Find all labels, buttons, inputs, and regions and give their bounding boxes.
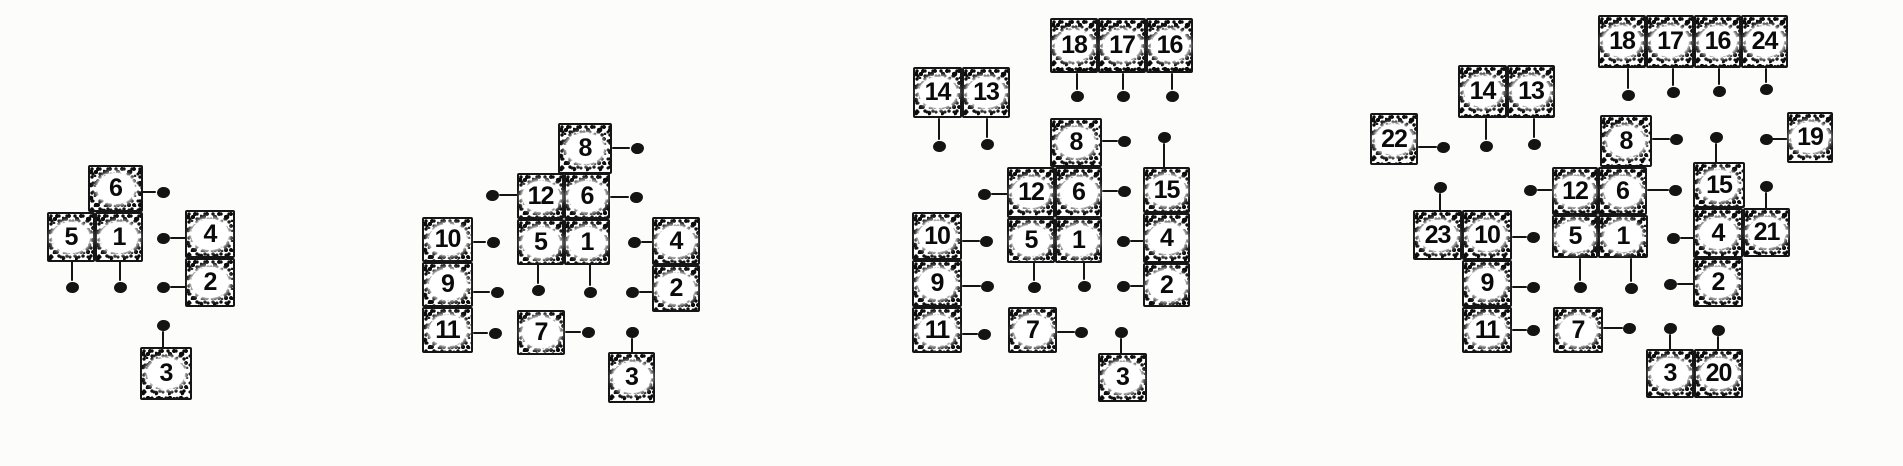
post-dot (1527, 138, 1541, 151)
post-dot (1573, 281, 1587, 294)
stage-panel-4: 181716241413228191261523105142129117320 (0, 0, 1903, 466)
unit-block-6: 6 (1598, 167, 1647, 215)
post-dot (1621, 89, 1635, 102)
unit-block-21: 21 (1743, 208, 1790, 257)
unit-number-badge: 22 (1375, 124, 1413, 155)
unit-block-12: 12 (1552, 167, 1598, 215)
unit-number-badge: 8 (1607, 126, 1645, 157)
unit-block-18: 18 (1598, 15, 1646, 68)
unit-number-badge: 10 (1468, 220, 1506, 251)
unit-block-1: 1 (1598, 215, 1648, 258)
post-dot (1433, 181, 1447, 194)
connector-line (1652, 138, 1670, 141)
post-dot (1709, 131, 1723, 144)
connector-line (1579, 258, 1582, 281)
unit-number-badge: 18 (1603, 26, 1641, 57)
unit-block-14: 14 (1458, 65, 1507, 118)
connector-line (1647, 189, 1669, 192)
unit-block-5: 5 (1552, 215, 1598, 258)
connector-line (1765, 68, 1768, 83)
unit-block-8: 8 (1600, 115, 1652, 167)
post-dot (1624, 282, 1638, 295)
post-dot (1759, 83, 1773, 96)
unit-number-badge: 20 (1700, 358, 1738, 389)
unit-number-badge: 2 (1699, 267, 1737, 298)
unit-block-15: 15 (1693, 162, 1745, 208)
unit-number-badge: 19 (1791, 122, 1829, 153)
connector-line (1485, 118, 1488, 140)
unit-block-13: 13 (1507, 65, 1555, 118)
unit-block-3: 3 (1646, 349, 1694, 398)
connector-line (1512, 236, 1527, 239)
post-dot (1622, 322, 1636, 335)
unit-number-badge: 5 (1556, 221, 1594, 252)
unit-block-10: 10 (1462, 210, 1512, 260)
unit-number-badge: 16 (1699, 26, 1737, 57)
unit-number-badge: 7 (1559, 315, 1597, 346)
post-dot (1759, 180, 1773, 193)
unit-block-2: 2 (1693, 258, 1743, 307)
post-dot (1479, 140, 1493, 153)
unit-block-24: 24 (1741, 15, 1788, 68)
connector-line (1603, 327, 1623, 330)
unit-number-badge: 23 (1419, 220, 1457, 251)
post-dot (1526, 231, 1540, 244)
post-dot (1669, 133, 1683, 146)
unit-block-22: 22 (1370, 113, 1418, 165)
unit-number-badge: 9 (1468, 268, 1506, 299)
unit-block-23: 23 (1413, 210, 1462, 260)
unit-number-badge: 3 (1651, 358, 1689, 389)
unit-block-16: 16 (1694, 15, 1741, 68)
unit-number-badge: 17 (1651, 26, 1689, 57)
connector-line (1627, 68, 1630, 89)
connector-line (1630, 258, 1633, 282)
post-dot (1526, 324, 1540, 337)
unit-block-20: 20 (1694, 349, 1743, 398)
connector-line (1418, 146, 1437, 149)
unit-number-badge: 11 (1468, 315, 1506, 346)
connector-line (1512, 329, 1527, 332)
post-dot (1668, 184, 1682, 197)
unit-block-9: 9 (1462, 260, 1512, 307)
unit-number-badge: 14 (1464, 76, 1502, 107)
post-dot (1523, 184, 1537, 197)
unit-number-badge: 21 (1748, 217, 1786, 248)
unit-number-badge: 13 (1512, 76, 1550, 107)
diagram-canvas: 6514238126511091142731817161413812651154… (0, 0, 1903, 466)
unit-block-4: 4 (1693, 208, 1743, 258)
post-dot (1436, 141, 1450, 154)
unit-number-badge: 1 (1604, 221, 1642, 252)
unit-block-7: 7 (1553, 307, 1603, 353)
connector-line (1672, 68, 1675, 86)
post-dot (1663, 322, 1677, 335)
post-dot (1663, 278, 1677, 291)
connector-line (1715, 143, 1718, 164)
unit-number-badge: 15 (1700, 170, 1738, 201)
post-dot (1711, 324, 1725, 337)
post-dot (1666, 232, 1680, 245)
connector-line (1718, 68, 1721, 85)
post-dot (1666, 86, 1680, 99)
connector-line (1512, 286, 1527, 289)
post-dot (1526, 281, 1540, 294)
unit-number-badge: 4 (1699, 218, 1737, 249)
unit-number-badge: 24 (1746, 26, 1784, 57)
post-dot (1712, 85, 1726, 98)
post-dot (1759, 133, 1773, 146)
unit-number-badge: 6 (1604, 176, 1642, 207)
connector-line (1533, 118, 1536, 138)
unit-block-17: 17 (1646, 15, 1694, 68)
unit-block-11: 11 (1462, 307, 1512, 353)
unit-block-19: 19 (1787, 112, 1833, 163)
unit-number-badge: 12 (1556, 176, 1594, 207)
